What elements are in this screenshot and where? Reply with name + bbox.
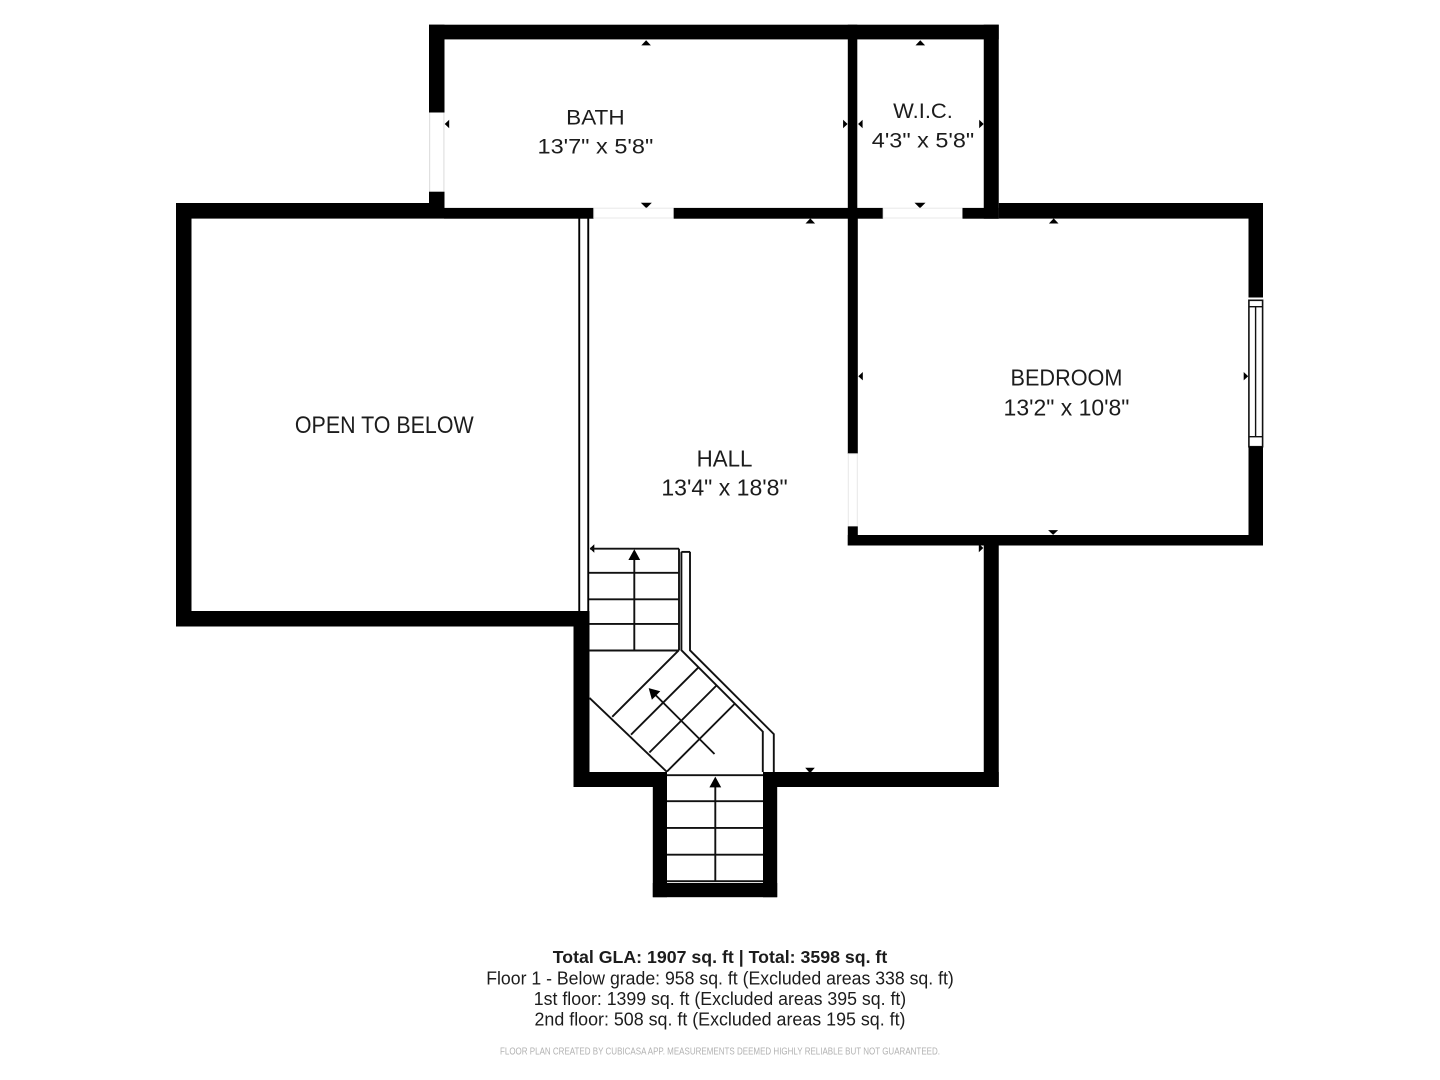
svg-text:HALL: HALL	[697, 445, 753, 471]
svg-text:BATH: BATH	[566, 106, 624, 130]
svg-text:4'3" x 5'8": 4'3" x 5'8"	[872, 129, 974, 153]
svg-text:W.I.C.: W.I.C.	[893, 99, 953, 123]
svg-text:13'2" x 10'8": 13'2" x 10'8"	[1004, 395, 1130, 421]
svg-text:Total GLA: 1907 sq. ft | Total: Total GLA: 1907 sq. ft | Total: 3598 sq.…	[553, 947, 888, 967]
svg-text:BEDROOM: BEDROOM	[1011, 365, 1123, 391]
svg-text:13'4" x 18'8": 13'4" x 18'8"	[661, 475, 787, 501]
svg-text:2nd floor: 508 sq. ft (Exclude: 2nd floor: 508 sq. ft (Excluded areas 19…	[535, 1010, 906, 1030]
svg-text:OPEN TO BELOW: OPEN TO BELOW	[295, 412, 474, 439]
svg-text:FLOOR PLAN CREATED BY CUBICASA: FLOOR PLAN CREATED BY CUBICASA APP. MEAS…	[500, 1046, 940, 1057]
svg-text:1st floor: 1399 sq. ft (Exclud: 1st floor: 1399 sq. ft (Excluded areas 3…	[534, 989, 906, 1009]
svg-text:13'7" x 5'8": 13'7" x 5'8"	[538, 135, 654, 159]
svg-text:Floor 1 - Below grade: 958 sq.: Floor 1 - Below grade: 958 sq. ft (Exclu…	[486, 969, 954, 989]
